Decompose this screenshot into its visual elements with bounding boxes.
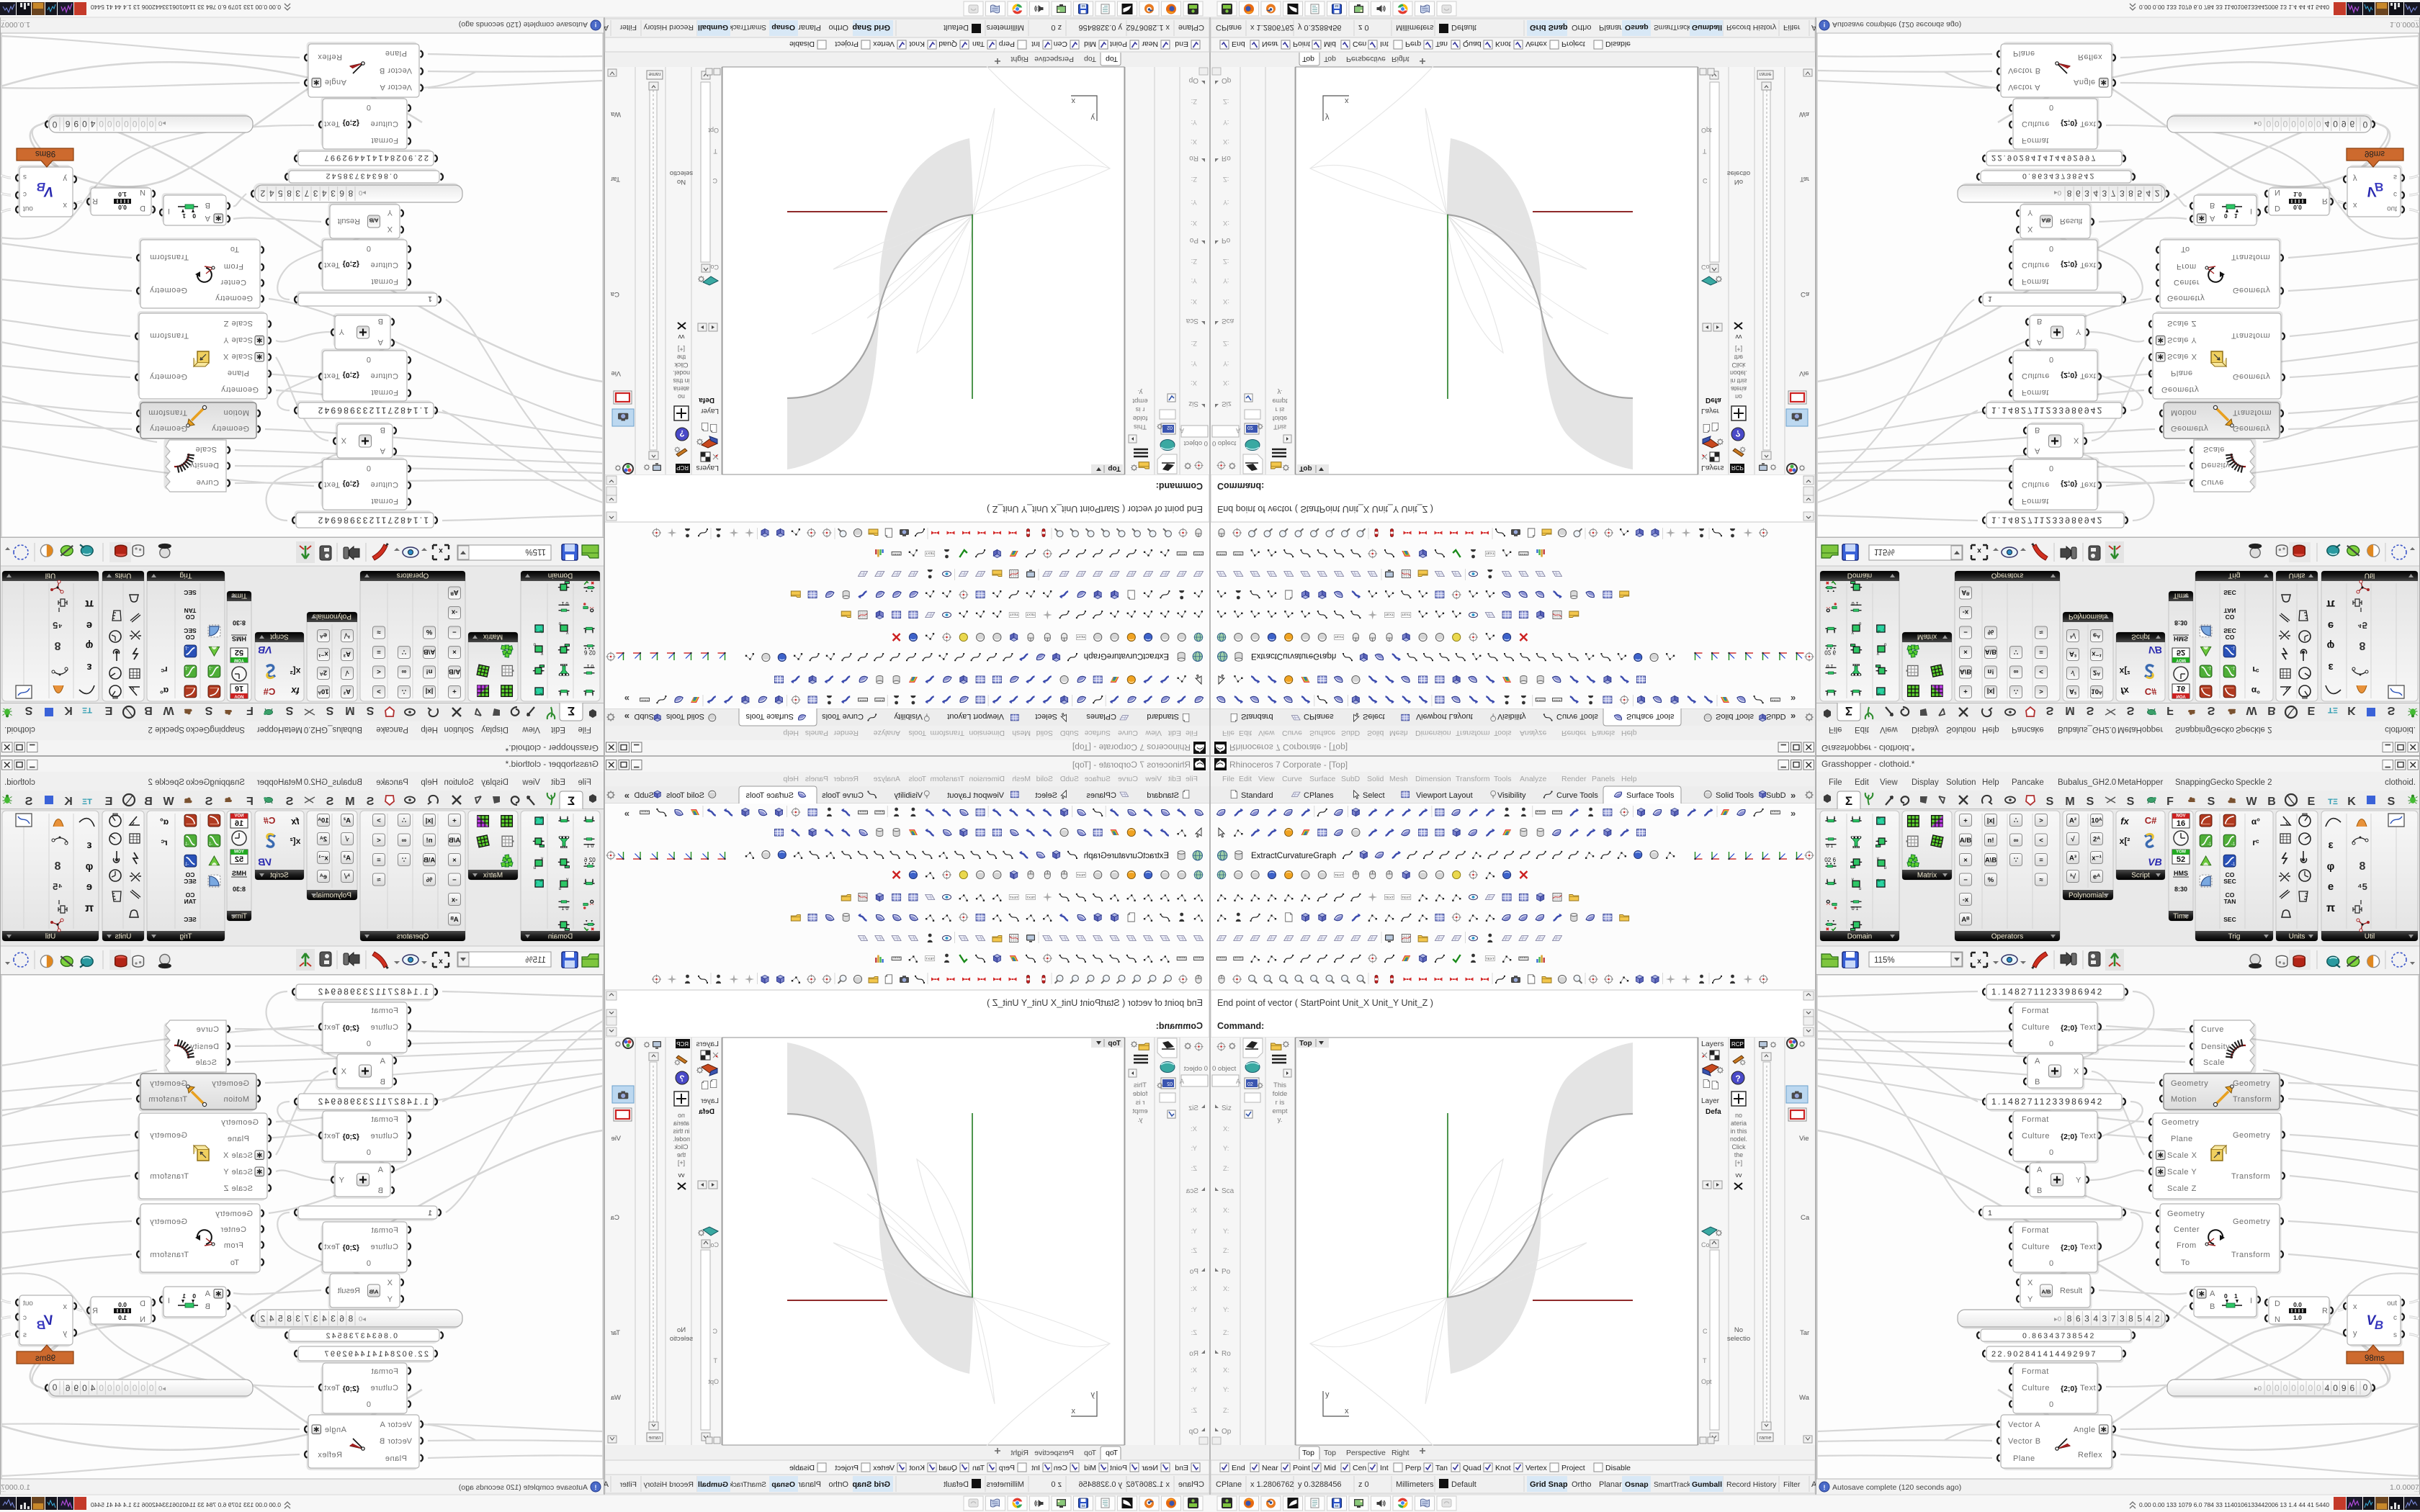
svg-text:A³: A³ [2069, 855, 2076, 863]
svg-text:Edit: Edit [1239, 775, 1252, 783]
svg-text:6: 6 [2349, 1383, 2354, 1393]
svg-text:Top: Top [1299, 1040, 1312, 1048]
svg-text:9: 9 [2341, 1383, 2347, 1393]
svg-text:0: 0 [2291, 1383, 2296, 1393]
svg-text:8: 8 [2359, 860, 2366, 873]
svg-text:Format: Format [2022, 1367, 2049, 1376]
svg-text:Help: Help [1982, 778, 1999, 787]
svg-text:YOM: YOM [2176, 850, 2186, 855]
svg-text:Vector B: Vector B [2008, 1437, 2041, 1446]
svg-text:Curve Tools: Curve Tools [1556, 791, 1598, 800]
svg-text:Display: Display [1912, 778, 1939, 787]
svg-text:Text: Text [2080, 1132, 2096, 1140]
svg-text:y.: y. [1278, 1116, 1283, 1124]
svg-text:1.0: 1.0 [2293, 1314, 2302, 1321]
svg-text:Culture: Culture [2022, 1384, 2050, 1392]
svg-text:A: A [2035, 1057, 2040, 1066]
svg-text:4: 4 [2093, 1314, 2098, 1324]
svg-text:out: out [2387, 1300, 2397, 1308]
svg-text:A/B: A/B [1960, 837, 1972, 845]
svg-text:<: < [2039, 837, 2043, 845]
svg-text:Density: Density [2201, 1043, 2230, 1051]
svg-text:0: 0 [2049, 1259, 2053, 1268]
svg-text:X:: X: [1223, 1285, 1229, 1293]
svg-text:Sca: Sca [1222, 1187, 1234, 1195]
svg-text:Y:: Y: [1223, 1386, 1229, 1394]
svg-text:B: B [2210, 1302, 2215, 1311]
svg-text:>: > [2039, 817, 2043, 825]
svg-text:0.00 0.00 133 1079 6.0 784 3: 0.00 0.00 133 1079 6.0 784 33 1140106133… [2139, 1501, 2329, 1508]
svg-text:folde: folde [1273, 1090, 1288, 1098]
svg-text:Solid Tools: Solid Tools [1716, 791, 1754, 800]
svg-text:Grid Snap: Grid Snap [1530, 1480, 1568, 1489]
svg-text:Scale Y: Scale Y [2167, 1168, 2197, 1176]
svg-text:W: W [2246, 796, 2257, 808]
svg-text:Right: Right [1391, 1449, 1410, 1457]
svg-text:Select: Select [1363, 791, 1385, 800]
svg-text:|x|: |x| [1987, 817, 1995, 825]
svg-text:Σ: Σ [1845, 794, 1852, 808]
svg-text:x: x [1977, 958, 1981, 966]
svg-text:0: 0 [2363, 1382, 2368, 1392]
svg-text:Knot: Knot [1495, 1464, 1511, 1472]
svg-text:Rhinoceros 7 Corporate - [Top]: Rhinoceros 7 Corporate - [Top] [1229, 760, 1348, 770]
svg-text:Cen: Cen [1353, 1464, 1366, 1472]
svg-text:3: 3 [2120, 1314, 2125, 1324]
svg-text:02: 02 [1247, 1082, 1253, 1087]
svg-text:2ᴬ: 2ᴬ [2093, 836, 2100, 844]
svg-text:Domain: Domain [1847, 933, 1872, 941]
svg-text:nodel.: nodel. [1730, 1135, 1747, 1143]
svg-text:selectio: selectio [1727, 1335, 1750, 1343]
svg-text:S: S [2087, 796, 2094, 808]
svg-text:Standard: Standard [1241, 791, 1273, 800]
svg-text:ΤΞ: ΤΞ [2328, 798, 2338, 806]
svg-text:1: 1 [1988, 1209, 1994, 1218]
svg-text:x 1.2806762: x 1.2806762 [1250, 1480, 1294, 1489]
svg-text:S: S [2046, 796, 2054, 808]
svg-text:0: 0 [2308, 1383, 2313, 1393]
svg-text:Geometry: Geometry [2161, 1118, 2199, 1127]
svg-text:Default: Default [1451, 1480, 1476, 1489]
svg-text:Text: Text [2080, 1243, 2096, 1251]
svg-text:Top: Top [1324, 1449, 1336, 1457]
svg-text:.::: .:: [2414, 1487, 2419, 1493]
svg-text:Quad: Quad [1463, 1464, 1482, 1472]
svg-text:M: M [2065, 796, 2074, 808]
svg-text:{2;0}: {2;0} [2061, 1133, 2077, 1141]
svg-text:Solid: Solid [1367, 775, 1384, 783]
svg-text:vv: vv [1736, 1171, 1743, 1179]
svg-text:Scale: Scale [2203, 1058, 2225, 1067]
svg-text:Render: Render [1561, 775, 1587, 783]
svg-text:z 0: z 0 [1358, 1480, 1369, 1489]
svg-text:no: no [1735, 1112, 1742, 1119]
svg-text:x: x [1345, 1407, 1349, 1416]
svg-text:Click: Click [1731, 1143, 1746, 1151]
svg-text:»: » [1791, 790, 1796, 801]
svg-text:View: View [1258, 775, 1275, 783]
svg-text:Visibility: Visibility [1497, 791, 1526, 800]
svg-text:Tar: Tar [1800, 1329, 1809, 1337]
svg-text:√: √ [2071, 836, 2075, 844]
svg-text:Surface Tools: Surface Tools [1626, 791, 1675, 800]
svg-text:A²: A² [2069, 817, 2076, 825]
svg-text:X:: X: [1223, 1125, 1229, 1133]
svg-text:0: 0 [2300, 1383, 2305, 1393]
svg-text:n!: n! [1988, 837, 1994, 845]
svg-text:X:: X: [1223, 1207, 1229, 1215]
svg-text:Matrix: Matrix [1917, 872, 1937, 880]
svg-text:X: X [2074, 1068, 2079, 1076]
svg-text:Disable: Disable [1605, 1464, 1631, 1472]
svg-text:Bubalus_GH2.0: Bubalus_GH2.0 [2058, 778, 2116, 787]
svg-text:r is: r is [1276, 1099, 1285, 1107]
svg-text:8: 8 [2128, 1314, 2133, 1324]
svg-text:Panels: Panels [1592, 775, 1615, 783]
svg-text:3: 3 [2102, 1314, 2107, 1324]
svg-text:Viewport Layout: Viewport Layout [1416, 791, 1473, 800]
svg-text:Z:: Z: [1223, 1247, 1229, 1255]
svg-text:Tan: Tan [1435, 1464, 1448, 1472]
svg-text:TAN: TAN [2224, 898, 2236, 905]
svg-text:eᴬ: eᴬ [2093, 873, 2100, 881]
svg-text:Point: Point [1293, 1464, 1310, 1472]
svg-text:≈: ≈ [2039, 876, 2043, 884]
svg-text:Y:: Y: [1223, 1145, 1229, 1153]
svg-text:52: 52 [2177, 855, 2185, 864]
svg-text:[+]: [+] [1735, 1159, 1742, 1166]
svg-text:I: I [2250, 1297, 2252, 1305]
svg-text:Result: Result [2060, 1287, 2082, 1295]
svg-text:D: D [2275, 1300, 2280, 1308]
svg-text:T: T [1703, 1357, 1707, 1364]
svg-text:Z:: Z: [1223, 1407, 1229, 1415]
svg-text:View: View [1880, 778, 1898, 787]
svg-text:Op: Op [1222, 1428, 1232, 1436]
svg-text:Y: Y [2027, 1295, 2033, 1304]
svg-text:0: 0 [2049, 1400, 2053, 1409]
svg-text:▸0: ▸0 [2054, 1315, 2061, 1323]
svg-text:∴: ∴ [2014, 817, 2018, 825]
svg-text:Autosave complete (120 seconds: Autosave complete (120 seconds ago) [1832, 1483, 1961, 1492]
svg-text:y 0.3288456: y 0.3288456 [1298, 1480, 1342, 1489]
svg-text:CPlane: CPlane [1216, 1480, 1242, 1489]
svg-text:Operators: Operators [1991, 933, 2023, 941]
svg-text:End point of vector ( StartPoi: End point of vector ( StartPoint Unit_X … [1217, 998, 1433, 1008]
svg-text:CPlanes: CPlanes [1304, 791, 1334, 800]
svg-text:Analyze: Analyze [1520, 775, 1547, 783]
svg-text:A: A [1236, 1078, 1240, 1085]
svg-text:-x: -x [1963, 896, 1969, 904]
svg-text:S: S [2208, 796, 2215, 808]
svg-text:B: B [2037, 1187, 2042, 1195]
svg-text:Ortho: Ortho [1572, 1480, 1592, 1489]
svg-text:×: × [1963, 857, 1968, 865]
svg-text:Osnap: Osnap [1625, 1480, 1649, 1489]
svg-text:A\B: A\B [1985, 857, 1997, 865]
svg-text:Dimension: Dimension [1415, 775, 1451, 783]
svg-text:Mid: Mid [1324, 1464, 1336, 1472]
svg-text:Scale Z: Scale Z [2167, 1184, 2197, 1193]
svg-text:Y:: Y: [1223, 1228, 1229, 1236]
svg-text:empt: empt [1272, 1107, 1287, 1115]
svg-text:Geometry: Geometry [2233, 1218, 2270, 1226]
svg-text:³√: ³√ [2070, 873, 2076, 881]
svg-text:X: X [2027, 1279, 2033, 1287]
svg-text:HMS: HMS [2174, 870, 2188, 877]
svg-text:?: ? [1735, 1074, 1740, 1084]
svg-text:Format: Format [2022, 1226, 2049, 1235]
svg-text:No: No [1734, 1326, 1743, 1334]
svg-text:Reflex: Reflex [2078, 1451, 2102, 1459]
svg-text:SnappingGecko: SnappingGecko [2175, 778, 2234, 787]
svg-text:Defa: Defa [1706, 1108, 1721, 1116]
svg-text:98ms: 98ms [2365, 1354, 2385, 1363]
svg-text:8:30: 8:30 [2174, 886, 2187, 893]
svg-text:Siz: Siz [1222, 1104, 1232, 1112]
svg-text:%: % [1988, 876, 1994, 884]
svg-text:Geometry: Geometry [2233, 1131, 2270, 1140]
svg-text:Util: Util [2365, 933, 2375, 941]
svg-text:K: K [2347, 796, 2356, 808]
svg-text:x⁻¹: x⁻¹ [2092, 855, 2101, 863]
svg-text:Vector A: Vector A [2008, 1421, 2040, 1429]
svg-text:s: s [2393, 1331, 2397, 1339]
svg-text:Units: Units [2289, 933, 2305, 941]
svg-text:From: From [2177, 1241, 2197, 1250]
svg-text:0: 0 [2266, 1383, 2271, 1393]
svg-text:3: 3 [2084, 1314, 2089, 1324]
svg-text:Curve: Curve [2201, 1025, 2224, 1034]
svg-text:Culture: Culture [2022, 1132, 2050, 1140]
svg-text:Project: Project [1561, 1464, 1585, 1472]
svg-text:fx: fx [2120, 816, 2129, 827]
svg-text:0 object: 0 object [1212, 1065, 1237, 1073]
svg-text:Transform: Transform [2233, 1095, 2272, 1104]
svg-text:c: c [2393, 1314, 2397, 1322]
svg-text:X:: X: [1223, 1367, 1229, 1374]
svg-text:B: B [2035, 1078, 2040, 1086]
svg-text:0.0: 0.0 [2293, 1301, 2302, 1308]
svg-text:Culture: Culture [2022, 1023, 2050, 1032]
svg-text:1.1482711233986942: 1.1482711233986942 [1991, 987, 2104, 997]
svg-text:!: ! [1824, 1484, 1826, 1491]
svg-text:This: This [1273, 1081, 1286, 1089]
svg-text:Opt: Opt [1701, 1378, 1712, 1385]
svg-text:Perspective: Perspective [1346, 1449, 1386, 1457]
svg-text:Ca: Ca [1801, 1214, 1810, 1222]
svg-text:0: 0 [2283, 1383, 2288, 1393]
svg-text:x[²: x[² [2120, 836, 2130, 846]
svg-text:Po: Po [1222, 1268, 1231, 1276]
svg-text:16: 16 [2177, 819, 2185, 828]
svg-text:SubD: SubD [1766, 791, 1786, 800]
svg-text:{2;0}: {2;0} [2061, 1385, 2077, 1393]
svg-text:{2;0}: {2;0} [2061, 1243, 2077, 1252]
svg-text:x: x [2353, 1302, 2357, 1311]
svg-text:Aᴮ: Aᴮ [1961, 916, 1970, 924]
svg-text:VB: VB [2148, 856, 2161, 868]
svg-text:φ: φ [2327, 860, 2335, 873]
svg-text:Curve: Curve [1282, 775, 1302, 783]
svg-text:rᶜ: rᶜ [2252, 837, 2259, 847]
svg-text:Motion: Motion [2171, 1095, 2197, 1104]
svg-text:Filter: Filter [1783, 1480, 1801, 1489]
svg-text:S: S [2388, 796, 2396, 808]
svg-text:A: A [2037, 1166, 2043, 1174]
svg-text:SEC: SEC [2223, 878, 2236, 885]
svg-text:2: 2 [2155, 1314, 2160, 1324]
svg-text:y: y [2353, 1329, 2357, 1338]
svg-text:Transform: Transform [2231, 1251, 2270, 1259]
svg-text:0: 0 [2275, 1383, 2280, 1393]
svg-text:0: 0 [2049, 1148, 2053, 1157]
svg-text:Vie: Vie [1799, 1135, 1809, 1143]
svg-text:{2;0}: {2;0} [2061, 1024, 2077, 1032]
svg-text:SEC: SEC [2223, 916, 2236, 923]
svg-text:∵: ∵ [2014, 857, 2018, 865]
svg-text:Y: Y [2076, 1176, 2081, 1185]
svg-text:Geometry: Geometry [2233, 1079, 2270, 1088]
svg-text:Ro: Ro [1222, 1350, 1231, 1358]
svg-text:Format: Format [2022, 1115, 2049, 1124]
svg-text:0: 0 [2049, 1040, 2053, 1048]
svg-text:S: S [2127, 796, 2135, 808]
svg-text:E: E [2308, 796, 2316, 808]
svg-text:4: 4 [2325, 1383, 2330, 1393]
svg-text:RCP: RCP [1731, 1041, 1744, 1048]
svg-text:Y:: Y: [1223, 1306, 1229, 1314]
svg-text:0: 0 [2224, 1292, 2228, 1300]
svg-text:10ᴬ: 10ᴬ [2091, 817, 2102, 825]
svg-text:+: + [1963, 817, 1968, 825]
svg-text:A/B: A/B [2042, 1289, 2052, 1295]
svg-text:Speckle 2: Speckle 2 [2236, 778, 2272, 787]
svg-text:NOV: NOV [2176, 814, 2185, 819]
svg-text:Layer: Layer [1701, 1097, 1720, 1105]
svg-text:in this: in this [1731, 1128, 1748, 1135]
svg-text:Geometry: Geometry [2167, 1210, 2205, 1218]
svg-text:R: R [2322, 1307, 2328, 1315]
svg-text:Trig: Trig [2228, 933, 2241, 941]
svg-text:Planar: Planar [1599, 1480, 1622, 1489]
svg-text:Int: Int [1380, 1464, 1389, 1472]
svg-text:Command:: Command: [1217, 1021, 1264, 1031]
svg-text:4: 4 [2146, 1314, 2151, 1324]
svg-text:Near: Near [1262, 1464, 1278, 1472]
svg-text:File: File [1829, 778, 1842, 787]
svg-text:1: 1 [2234, 1292, 2238, 1300]
svg-text:Angle: Angle [2074, 1426, 2096, 1434]
svg-text:File: File [1222, 775, 1234, 783]
svg-text:1.1482711233986942: 1.1482711233986942 [1991, 1097, 2104, 1107]
svg-text:Tools: Tools [1494, 775, 1512, 783]
svg-text:B: B [2375, 1318, 2383, 1332]
svg-text:Z:: Z: [1223, 1165, 1229, 1173]
svg-text:Record History: Record History [1726, 1480, 1777, 1489]
svg-text:Solution: Solution [1946, 778, 1976, 787]
svg-text:Polynomials: Polynomials [2069, 892, 2107, 900]
svg-text:7: 7 [2111, 1314, 2116, 1324]
svg-text:Mesh: Mesh [1389, 775, 1408, 783]
svg-text:22.902841414492997: 22.902841414492997 [1991, 1350, 2097, 1359]
svg-text:Transform: Transform [2231, 1172, 2270, 1181]
svg-text:−: − [1963, 876, 1968, 884]
svg-text:»: » [1791, 808, 1796, 819]
svg-text:Wa: Wa [1799, 1394, 1810, 1402]
svg-text:⁴5: ⁴5 [2357, 881, 2367, 892]
svg-text:Culture: Culture [2022, 1243, 2050, 1251]
svg-text:N: N [2275, 1315, 2280, 1324]
svg-text:Surface: Surface [1309, 775, 1335, 783]
svg-text:115%: 115% [1874, 956, 1895, 965]
svg-text:Pancake: Pancake [2012, 778, 2044, 787]
svg-text:0.86343738542: 0.86343738542 [2022, 1332, 2096, 1341]
svg-text:ε: ε [2328, 839, 2333, 851]
svg-text:Plane: Plane [2171, 1135, 2193, 1143]
svg-text:Script: Script [2131, 872, 2150, 880]
svg-text:Layers: Layers [1701, 1040, 1724, 1048]
svg-text:Perp: Perp [1405, 1464, 1421, 1472]
svg-text:B: B [2267, 796, 2276, 808]
svg-text:Help: Help [1621, 775, 1637, 783]
svg-text:5: 5 [2137, 1314, 2142, 1324]
svg-text:y: y [1325, 1390, 1330, 1399]
svg-text:=: = [2039, 857, 2043, 865]
svg-text:Top: Top [1302, 1449, 1314, 1457]
svg-text:rame: rame [1759, 1434, 1771, 1441]
svg-text:Edit: Edit [1855, 778, 1870, 787]
svg-text:SubD: SubD [1341, 775, 1361, 783]
svg-text:Text: Text [2080, 1384, 2096, 1392]
svg-text:C#: C# [2145, 815, 2157, 826]
svg-text:Gumball: Gumball [1692, 1480, 1722, 1489]
svg-text:0: 0 [2333, 1383, 2338, 1393]
svg-text:π: π [2326, 902, 2335, 914]
svg-text:Transform: Transform [1456, 775, 1490, 783]
svg-text:Vertex: Vertex [1525, 1464, 1548, 1472]
svg-text:8: 8 [2067, 1314, 2072, 1324]
svg-text:MetaHopper: MetaHopper [2117, 778, 2163, 787]
svg-text:clothoid.: clothoid. [2385, 778, 2416, 787]
svg-text:▸0: ▸0 [2254, 1385, 2262, 1393]
svg-text:e: e [2328, 881, 2334, 893]
svg-text:To: To [2181, 1259, 2190, 1267]
svg-text:the: the [1734, 1151, 1743, 1158]
svg-text:End: End [1232, 1464, 1245, 1472]
svg-text:F: F [2166, 796, 2174, 808]
svg-text:6: 6 [2076, 1314, 2081, 1324]
svg-text:Z:: Z: [1223, 1329, 1229, 1337]
svg-text:Format: Format [2022, 1007, 2049, 1015]
svg-text:0: 0 [2316, 1383, 2321, 1393]
svg-text:Plane: Plane [2013, 1454, 2035, 1463]
svg-text:α°: α° [2251, 816, 2260, 827]
svg-text:Millimeters: Millimeters [1396, 1480, 1434, 1489]
svg-text:ateria: ateria [1731, 1120, 1747, 1127]
svg-text:SmartTrack: SmartTrack [1654, 1481, 1691, 1489]
svg-text:Text: Text [2080, 1023, 2096, 1032]
svg-text:∞: ∞ [2014, 837, 2019, 845]
svg-text:Geometry: Geometry [2171, 1079, 2208, 1088]
svg-text:Scale X: Scale X [2167, 1151, 2197, 1160]
svg-text:A: A [2210, 1290, 2215, 1298]
svg-text:C: C [1703, 1328, 1708, 1335]
svg-text:ExtractCurvatureGraph: ExtractCurvatureGraph [1251, 852, 1336, 860]
svg-text:Grasshopper - clothoid.*: Grasshopper - clothoid.* [1821, 759, 1915, 769]
svg-text:Center: Center [2174, 1225, 2200, 1234]
